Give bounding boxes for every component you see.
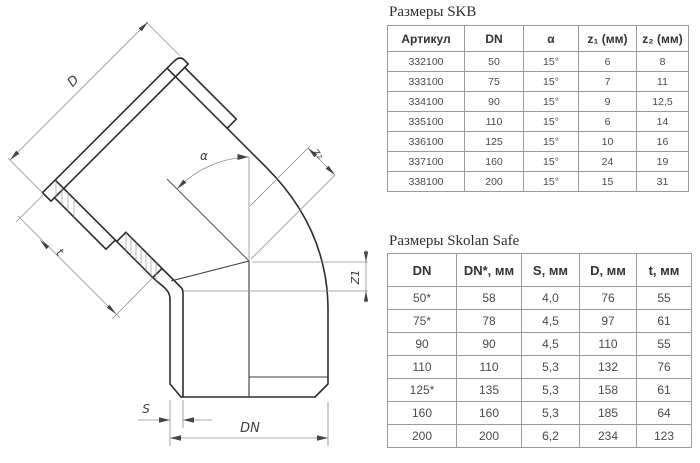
table-row: 1601605,318564	[388, 402, 692, 425]
column-header: DN	[388, 254, 457, 287]
table-cell: 78	[457, 310, 522, 333]
table-cell: 6	[579, 112, 637, 132]
table-cell: 132	[580, 356, 637, 379]
table-cell: 15°	[524, 72, 579, 92]
table-cell: 160	[465, 152, 524, 172]
table-cell: 4,5	[522, 310, 580, 333]
arrowhead	[364, 252, 368, 263]
table-cell: 14	[637, 112, 689, 132]
body-right-wall-and-bend	[167, 68, 328, 397]
table-cell: 200	[465, 172, 524, 192]
skb-table: АртикулDNαz₁ (мм)z₂ (мм) 3321005015°6833…	[387, 25, 689, 192]
header-row: АртикулDNαz₁ (мм)z₂ (мм)	[388, 26, 689, 52]
page: D α z₂ Z1 t	[0, 0, 700, 463]
dimension-DN: DN	[170, 402, 328, 446]
arrowhead	[170, 435, 181, 441]
skb-table-head: АртикулDNαz₁ (мм)z₂ (мм)	[388, 26, 689, 52]
table-cell: 75*	[388, 310, 457, 333]
skolan-table-body: 50*584,0765575*784,5976190904,5110551101…	[388, 287, 692, 448]
table-cell: 8	[637, 52, 689, 72]
label-t: t	[53, 246, 67, 260]
column-header: t, мм	[637, 254, 692, 287]
dimension-Z1: Z1	[184, 250, 368, 303]
table-cell: 160	[388, 402, 457, 425]
table-row: 3331007515°711	[388, 72, 689, 92]
table-cell: 15°	[524, 92, 579, 112]
table-cell: 75	[465, 72, 524, 92]
table-cell: 90	[465, 92, 524, 112]
table-cell: 5,3	[522, 402, 580, 425]
table-cell: 158	[580, 379, 637, 402]
table-cell: 12,5	[637, 92, 689, 112]
label-S: S	[142, 402, 150, 416]
label-Z1: Z1	[349, 270, 362, 286]
table-row: 90904,511055	[388, 333, 692, 356]
table-cell: 55	[637, 333, 692, 356]
dimension-z2: z₂	[250, 145, 335, 259]
table-cell: 7	[579, 72, 637, 92]
table-cell: 336100	[388, 132, 465, 152]
table-row: 1101105,313276	[388, 356, 692, 379]
table-cell: 337100	[388, 152, 465, 172]
column-header: z₁ (мм)	[579, 26, 637, 52]
table-row: 2002006,2234123	[388, 425, 692, 448]
table-cell: 110	[457, 356, 522, 379]
table-cell: 334100	[388, 92, 465, 112]
table-cell: 97	[580, 310, 637, 333]
table-cell: 135	[457, 379, 522, 402]
table-cell: 5,3	[522, 379, 580, 402]
technical-drawing: D α z₂ Z1 t	[0, 0, 380, 463]
table-cell: 11	[637, 72, 689, 92]
table-cell: 200	[388, 425, 457, 448]
table-cell: 15°	[524, 152, 579, 172]
skolan-table-head: DNDN*, ммS, ммD, ммt, мм	[388, 254, 692, 287]
upper-axis-line	[167, 179, 249, 261]
table-cell: 125*	[388, 379, 457, 402]
table-cell: 16	[637, 132, 689, 152]
table-cell: 15°	[524, 132, 579, 152]
label-alpha: α	[200, 149, 208, 163]
table-cell: 110	[465, 112, 524, 132]
table-row: 33810020015°1531	[388, 172, 689, 192]
arrowhead	[40, 240, 49, 249]
table-cell: 15°	[524, 52, 579, 72]
table-cell: 19	[637, 152, 689, 172]
table-cell: 160	[457, 402, 522, 425]
column-header: D, мм	[580, 254, 637, 287]
table-cell: 333100	[388, 72, 465, 92]
table-cell: 76	[580, 287, 637, 310]
header-row: DNDN*, ммS, ммD, ммt, мм	[388, 254, 692, 287]
table-cell: 61	[637, 310, 692, 333]
table-cell: 9	[579, 92, 637, 112]
socket-bell-left-wall	[54, 198, 115, 250]
table-cell: 76	[637, 356, 692, 379]
table-cell: 338100	[388, 172, 465, 192]
table-cell: 58	[457, 287, 522, 310]
table-cell: 10	[579, 132, 637, 152]
table-row: 33510011015°614	[388, 112, 689, 132]
table-cell: 185	[580, 402, 637, 425]
table-row: 33710016015°2419	[388, 152, 689, 172]
arrowhead	[159, 417, 170, 423]
label-D: D	[65, 73, 83, 91]
column-header: S, мм	[522, 254, 580, 287]
table-cell: 90	[388, 333, 457, 356]
table-cell: 4,5	[522, 333, 580, 356]
gasket-band-hatch	[126, 232, 156, 280]
table-row: 50*584,07655	[388, 287, 692, 310]
table-cell: 4,0	[522, 287, 580, 310]
arrowhead	[238, 154, 249, 160]
table-cell: 15	[579, 172, 637, 192]
table-cell: 50	[465, 52, 524, 72]
table-cell: 6,2	[522, 425, 580, 448]
table-cell: 335100	[388, 112, 465, 132]
table-cell: 15°	[524, 172, 579, 192]
arrowhead	[364, 291, 368, 302]
skb-table-body: 3321005015°683331007515°7113341009015°91…	[388, 52, 689, 192]
table-row: 3341009015°912,5	[388, 92, 689, 112]
table-row: 3321005015°68	[388, 52, 689, 72]
arrowhead	[183, 417, 194, 423]
column-header: α	[524, 26, 579, 52]
table-cell: 64	[637, 402, 692, 425]
column-header: DN	[465, 26, 524, 52]
table-cell: 61	[637, 379, 692, 402]
column-header: Артикул	[388, 26, 465, 52]
dimension-alpha: α	[177, 149, 249, 261]
column-header: DN*, мм	[457, 254, 522, 287]
table-cell: 50*	[388, 287, 457, 310]
table-cell: 31	[637, 172, 689, 192]
table-cell: 234	[580, 425, 637, 448]
table-row: 75*784,59761	[388, 310, 692, 333]
arrowhead	[317, 435, 328, 441]
seal-band-stops	[117, 232, 162, 277]
table-row: 125*1355,315861	[388, 379, 692, 402]
label-DN: DN	[240, 421, 260, 436]
miter-edge-line	[171, 261, 249, 281]
column-header: z₂ (мм)	[637, 26, 689, 52]
dimension-D: D	[8, 22, 180, 193]
table-cell: 90	[457, 333, 522, 356]
table-cell: 5,3	[522, 356, 580, 379]
table-cell: 55	[637, 287, 692, 310]
table-cell: 110	[580, 333, 637, 356]
skb-table-title: Размеры SKB	[389, 4, 476, 21]
table-cell: 332100	[388, 52, 465, 72]
skolan-table-title: Размеры Skolan Safe	[389, 233, 519, 250]
elbow-fitting-outline	[43, 58, 329, 397]
table-cell: 6	[579, 52, 637, 72]
table-cell: 15°	[524, 112, 579, 132]
table-cell: 200	[457, 425, 522, 448]
table-row: 33610012515°1016	[388, 132, 689, 152]
table-cell: 110	[388, 356, 457, 379]
table-cell: 24	[579, 152, 637, 172]
label-z2: z₂	[310, 145, 328, 163]
table-cell: 125	[465, 132, 524, 152]
skolan-table: DNDN*, ммS, ммD, ммt, мм 50*584,0765575*…	[387, 253, 692, 448]
socket-bell-right-wall	[185, 68, 237, 129]
table-cell: 123	[637, 425, 692, 448]
inner-left-wall	[126, 232, 183, 397]
